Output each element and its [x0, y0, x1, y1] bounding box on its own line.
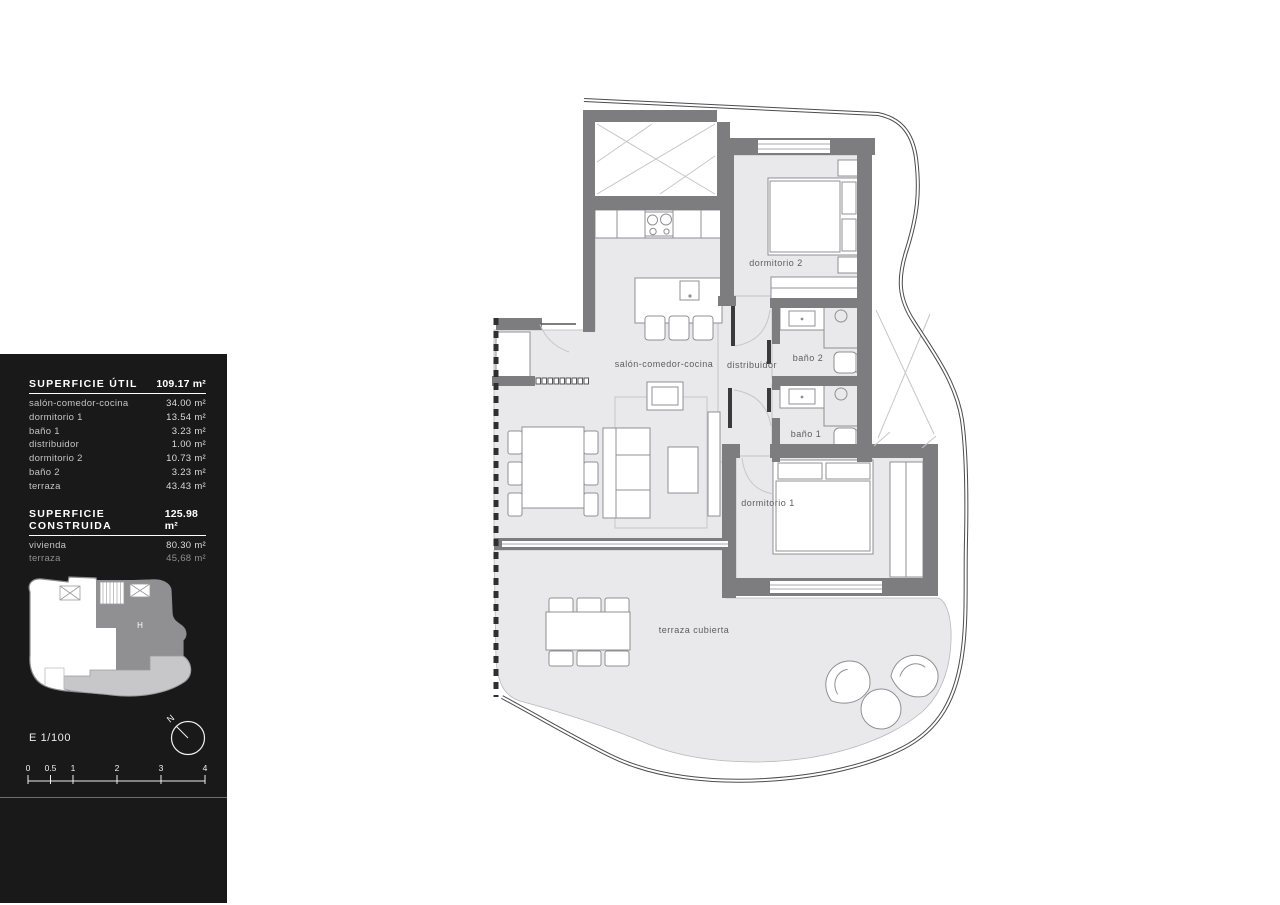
room-label-dormitorio2: dormitorio 2	[749, 258, 803, 268]
dining-table	[522, 427, 584, 508]
floor-plan-drawing: salón-comedor-cocina distribuidor baño 2…	[0, 0, 1280, 905]
coffee-table	[668, 447, 698, 493]
room-label-distribuidor: distribuidor	[727, 360, 777, 370]
room-label-bano2: baño 2	[793, 353, 824, 363]
entry-closet	[496, 332, 530, 380]
page: SUPERFICIE ÚTIL 109.17 m² salón-comedor-…	[0, 0, 1280, 905]
room-label-dormitorio1: dormitorio 1	[741, 498, 795, 508]
terrace-side-table	[861, 689, 901, 729]
room-label-bano1: baño 1	[791, 429, 822, 439]
sofa	[603, 428, 650, 518]
room-label-salon: salón-comedor-cocina	[615, 359, 714, 369]
room-label-terraza: terraza cubierta	[659, 625, 730, 635]
sideboard	[708, 412, 720, 516]
toilet-bath2	[834, 352, 857, 373]
terrace-table	[546, 612, 630, 650]
